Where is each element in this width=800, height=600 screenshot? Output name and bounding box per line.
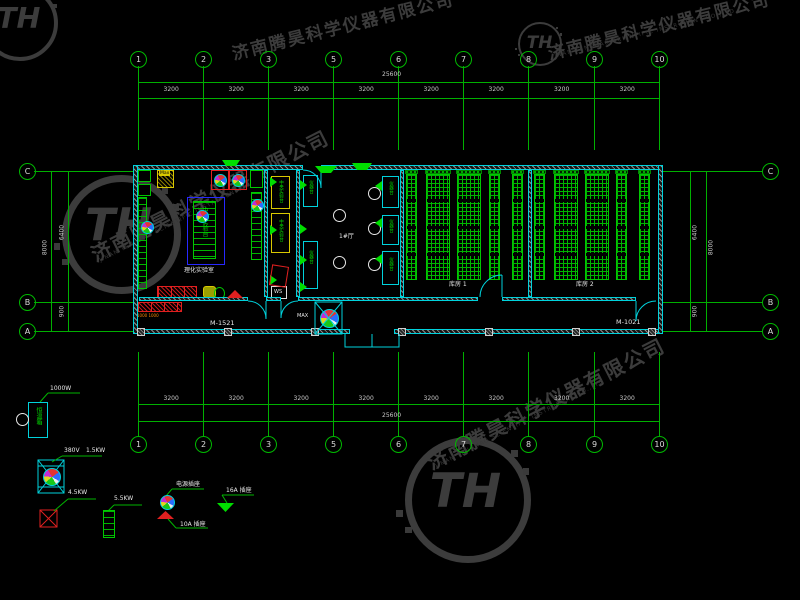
prep-bench-label: 中央实验台 <box>278 219 283 242</box>
legend-label-45kw: 4.5KW <box>68 489 87 496</box>
watermark-dot <box>556 27 558 29</box>
wall <box>528 170 532 297</box>
dimension-line-vertical <box>68 171 69 332</box>
dimension-total: 25600 <box>382 412 401 419</box>
wall <box>400 170 404 297</box>
dimension-text: 3200 <box>229 395 244 402</box>
grid-line-vertical <box>594 352 595 436</box>
fan-icon <box>141 221 154 234</box>
grid-bubble-bottom: 8 <box>520 436 537 453</box>
column-marker <box>648 328 656 336</box>
entrance-porch <box>345 334 399 347</box>
grid-bubble-right: A <box>762 323 779 340</box>
grid-line-vertical <box>203 352 204 436</box>
grid-line-horizontal <box>34 302 135 303</box>
wall-shelf <box>138 197 147 289</box>
stool <box>333 256 346 269</box>
grid-line-vertical <box>333 352 334 436</box>
exhaust-fan-icon <box>320 309 339 328</box>
dimension-text-900: 900 <box>692 297 699 327</box>
leader-lines <box>40 393 254 528</box>
dimension-text: 3200 <box>229 86 244 93</box>
room-label-store1: 库房 1 <box>449 279 467 288</box>
legend-socket-16a-icon <box>217 503 234 512</box>
dimension-text: 3200 <box>489 395 504 402</box>
wall <box>296 170 300 297</box>
grid-line-vertical <box>138 66 139 150</box>
watermark-company-en: JINAN TENGHAO SCIENTIFIC INSTRUMENT CO.,… <box>435 379 606 470</box>
grid-line-vertical <box>268 66 269 150</box>
grid-bubble-bottom: 2 <box>195 436 212 453</box>
wall-fan-icon <box>300 224 307 234</box>
incubator-text: 恒温箱 <box>35 407 41 425</box>
dimension-text: 3200 <box>294 395 309 402</box>
wall <box>139 297 248 301</box>
legend-label-10a: 10A 插座 <box>180 519 206 528</box>
grid-bubble-bottom: 3 <box>260 436 277 453</box>
wall <box>394 329 663 334</box>
dimension-text: 3200 <box>164 395 179 402</box>
watermark-monogram: TH <box>0 1 40 35</box>
grid-line-vertical <box>528 66 529 150</box>
stool <box>368 222 381 235</box>
room-label-store2: 库房 2 <box>576 279 594 288</box>
equipment-box <box>138 170 151 182</box>
room-label-hall: 1#厅 <box>339 231 354 240</box>
column-marker <box>137 328 145 336</box>
watermark-dot <box>511 450 518 457</box>
dimension-text: 3200 <box>489 86 504 93</box>
cad-canvas: TH济南腾昊科学仪器有限公司JINAN TENGHAO SCIENTIFIC I… <box>0 0 800 600</box>
dimension-text-900: 900 <box>59 297 66 327</box>
grid-line-vertical <box>203 66 204 150</box>
legend-heater-icon <box>103 510 115 538</box>
wall <box>266 297 281 301</box>
instrument-bench-label: 仪器台 <box>388 257 393 271</box>
stool <box>333 209 346 222</box>
legend-red-unit-icon <box>40 510 57 527</box>
storage-rack <box>489 174 500 280</box>
storage-rack <box>406 174 417 280</box>
fan-icon <box>196 210 209 223</box>
grid-bubble-bottom: 1 <box>130 436 147 453</box>
wall <box>133 165 138 334</box>
storage-rack <box>639 174 650 280</box>
grid-line-vertical <box>138 352 139 436</box>
dimension-line <box>138 404 659 405</box>
legend-label-380v: 380V <box>64 447 80 454</box>
wall <box>133 165 303 170</box>
door-arc <box>281 301 298 318</box>
ws-label: WS <box>274 289 282 295</box>
dimension-text-6400: 6400 <box>59 218 66 248</box>
dimension-text: 3200 <box>294 86 309 93</box>
legend-label-1000w: 1000W <box>50 385 71 392</box>
dimension-text: 3200 <box>620 395 635 402</box>
grid-line-vertical <box>333 66 334 150</box>
prep-bench-label: 中央实验台 <box>278 180 283 203</box>
instrument-bench-label: 仪器台 <box>388 181 393 195</box>
legend-socket-fan-icon <box>160 495 175 510</box>
dimension-text: 3200 <box>424 395 439 402</box>
watermark-dot <box>523 468 530 475</box>
fume-unit <box>229 170 247 190</box>
watermark-dot <box>515 48 517 50</box>
grid-bubble-bottom: 5 <box>325 436 342 453</box>
grid-line-vertical <box>659 352 660 436</box>
fume-unit <box>211 170 229 190</box>
door-tag-left: M-1521 <box>210 319 235 327</box>
grid-bubble-right: B <box>762 294 779 311</box>
storage-rack <box>554 174 578 280</box>
radiator-dims: 1000 1000 <box>137 313 159 318</box>
dimension-text: 3200 <box>359 395 374 402</box>
instrument-bench: 仪器台 <box>382 251 399 285</box>
instrument-bench: 仪器台 <box>303 241 318 289</box>
dimension-text-6400: 6400 <box>692 218 699 248</box>
dimension-total: 25600 <box>382 71 401 78</box>
grid-line-vertical <box>398 66 399 150</box>
circle-symbol <box>16 413 29 426</box>
storage-rack <box>426 174 450 280</box>
grid-bubble-bottom: 7 <box>455 436 472 453</box>
grid-line-horizontal <box>663 302 762 303</box>
wall <box>298 297 478 301</box>
wall-fan-icon <box>270 275 277 285</box>
max-cabinet: Max <box>157 170 174 188</box>
equipment-box <box>138 184 151 196</box>
dimension-text: 3200 <box>554 86 569 93</box>
grid-line-horizontal <box>34 171 135 172</box>
door-arc <box>248 301 266 319</box>
instrument-bench: 仪器台 <box>382 176 399 208</box>
dimension-text: 3200 <box>424 86 439 93</box>
wall <box>264 170 268 297</box>
dimension-line <box>138 421 659 422</box>
watermark-dot <box>405 527 412 534</box>
instrument-bench: 仪器台 <box>303 175 318 207</box>
dimension-line <box>138 82 659 83</box>
column-marker <box>485 328 493 336</box>
prep-bench: 中央实验台 <box>271 213 290 253</box>
radiator <box>137 302 182 312</box>
grid-line-vertical <box>528 352 529 436</box>
instrument-bench-label: 仪器台 <box>308 250 313 264</box>
tilted-cart <box>270 265 289 287</box>
max-cabinet-label: Max <box>159 171 170 176</box>
column-marker <box>224 328 232 336</box>
storage-rack <box>585 174 609 280</box>
grid-line-vertical <box>594 66 595 150</box>
incubator-symbol: 恒温箱 <box>28 402 48 438</box>
legend-label-power-socket: 电源插座 <box>176 479 200 488</box>
wall <box>502 297 636 301</box>
storage-rack <box>534 174 545 280</box>
grid-bubble-bottom: 9 <box>586 436 603 453</box>
grid-bubble-right: C <box>762 163 779 180</box>
column-marker <box>311 328 319 336</box>
legend-label-16a: 16A 插座 <box>226 485 252 494</box>
legend-socket-10a-icon <box>157 511 174 519</box>
stool <box>368 187 381 200</box>
storage-rack <box>457 174 481 280</box>
fan-icon <box>214 174 227 187</box>
wall <box>658 165 663 334</box>
stool <box>368 258 381 271</box>
max-fan-label: MAX <box>297 313 308 319</box>
instrument-bench-label: 仪器台 <box>308 180 313 194</box>
grid-bubble-bottom: 6 <box>390 436 407 453</box>
storage-rack <box>616 174 627 280</box>
grid-line-vertical <box>268 352 269 436</box>
dimension-text-8000: 8000 <box>42 233 49 263</box>
prep-bench: 中央实验台 <box>271 176 290 209</box>
column-marker <box>398 328 406 336</box>
equipment-box <box>250 170 263 188</box>
room-label-lab: 理化实验室 <box>184 265 214 274</box>
dimension-line-vertical <box>51 171 52 332</box>
watermark-dot <box>396 510 403 517</box>
grid-line-vertical <box>463 352 464 436</box>
dimension-text-8000: 8000 <box>708 233 715 263</box>
fan-icon <box>251 199 264 212</box>
door-tag-right: M-1021 <box>616 318 641 326</box>
grid-line-horizontal <box>34 331 135 332</box>
watermark-dot <box>53 4 57 8</box>
storage-rack <box>512 174 523 280</box>
legend-label-55kw: 5.5KW <box>114 495 133 502</box>
fan-icon <box>232 174 245 187</box>
instrument-bench-label: 仪器台 <box>388 219 393 233</box>
grid-line-vertical <box>463 66 464 150</box>
grid-bubble-bottom: 10 <box>651 436 668 453</box>
dimension-text: 3200 <box>359 86 374 93</box>
grid-line-horizontal <box>663 331 762 332</box>
column-marker <box>572 328 580 336</box>
dimension-text: 3200 <box>620 86 635 93</box>
grid-line-horizontal <box>663 171 762 172</box>
grid-line-vertical <box>659 66 660 150</box>
grid-line-vertical <box>398 352 399 436</box>
watermark-dot <box>162 188 168 194</box>
dimension-text: 3200 <box>554 395 569 402</box>
dimension-text: 3200 <box>164 86 179 93</box>
dimension-line <box>138 98 659 99</box>
legend-label-15kw: 1.5KW <box>86 447 105 454</box>
instrument-bench: 仪器台 <box>382 215 399 245</box>
legend-fan-icon <box>43 468 61 486</box>
